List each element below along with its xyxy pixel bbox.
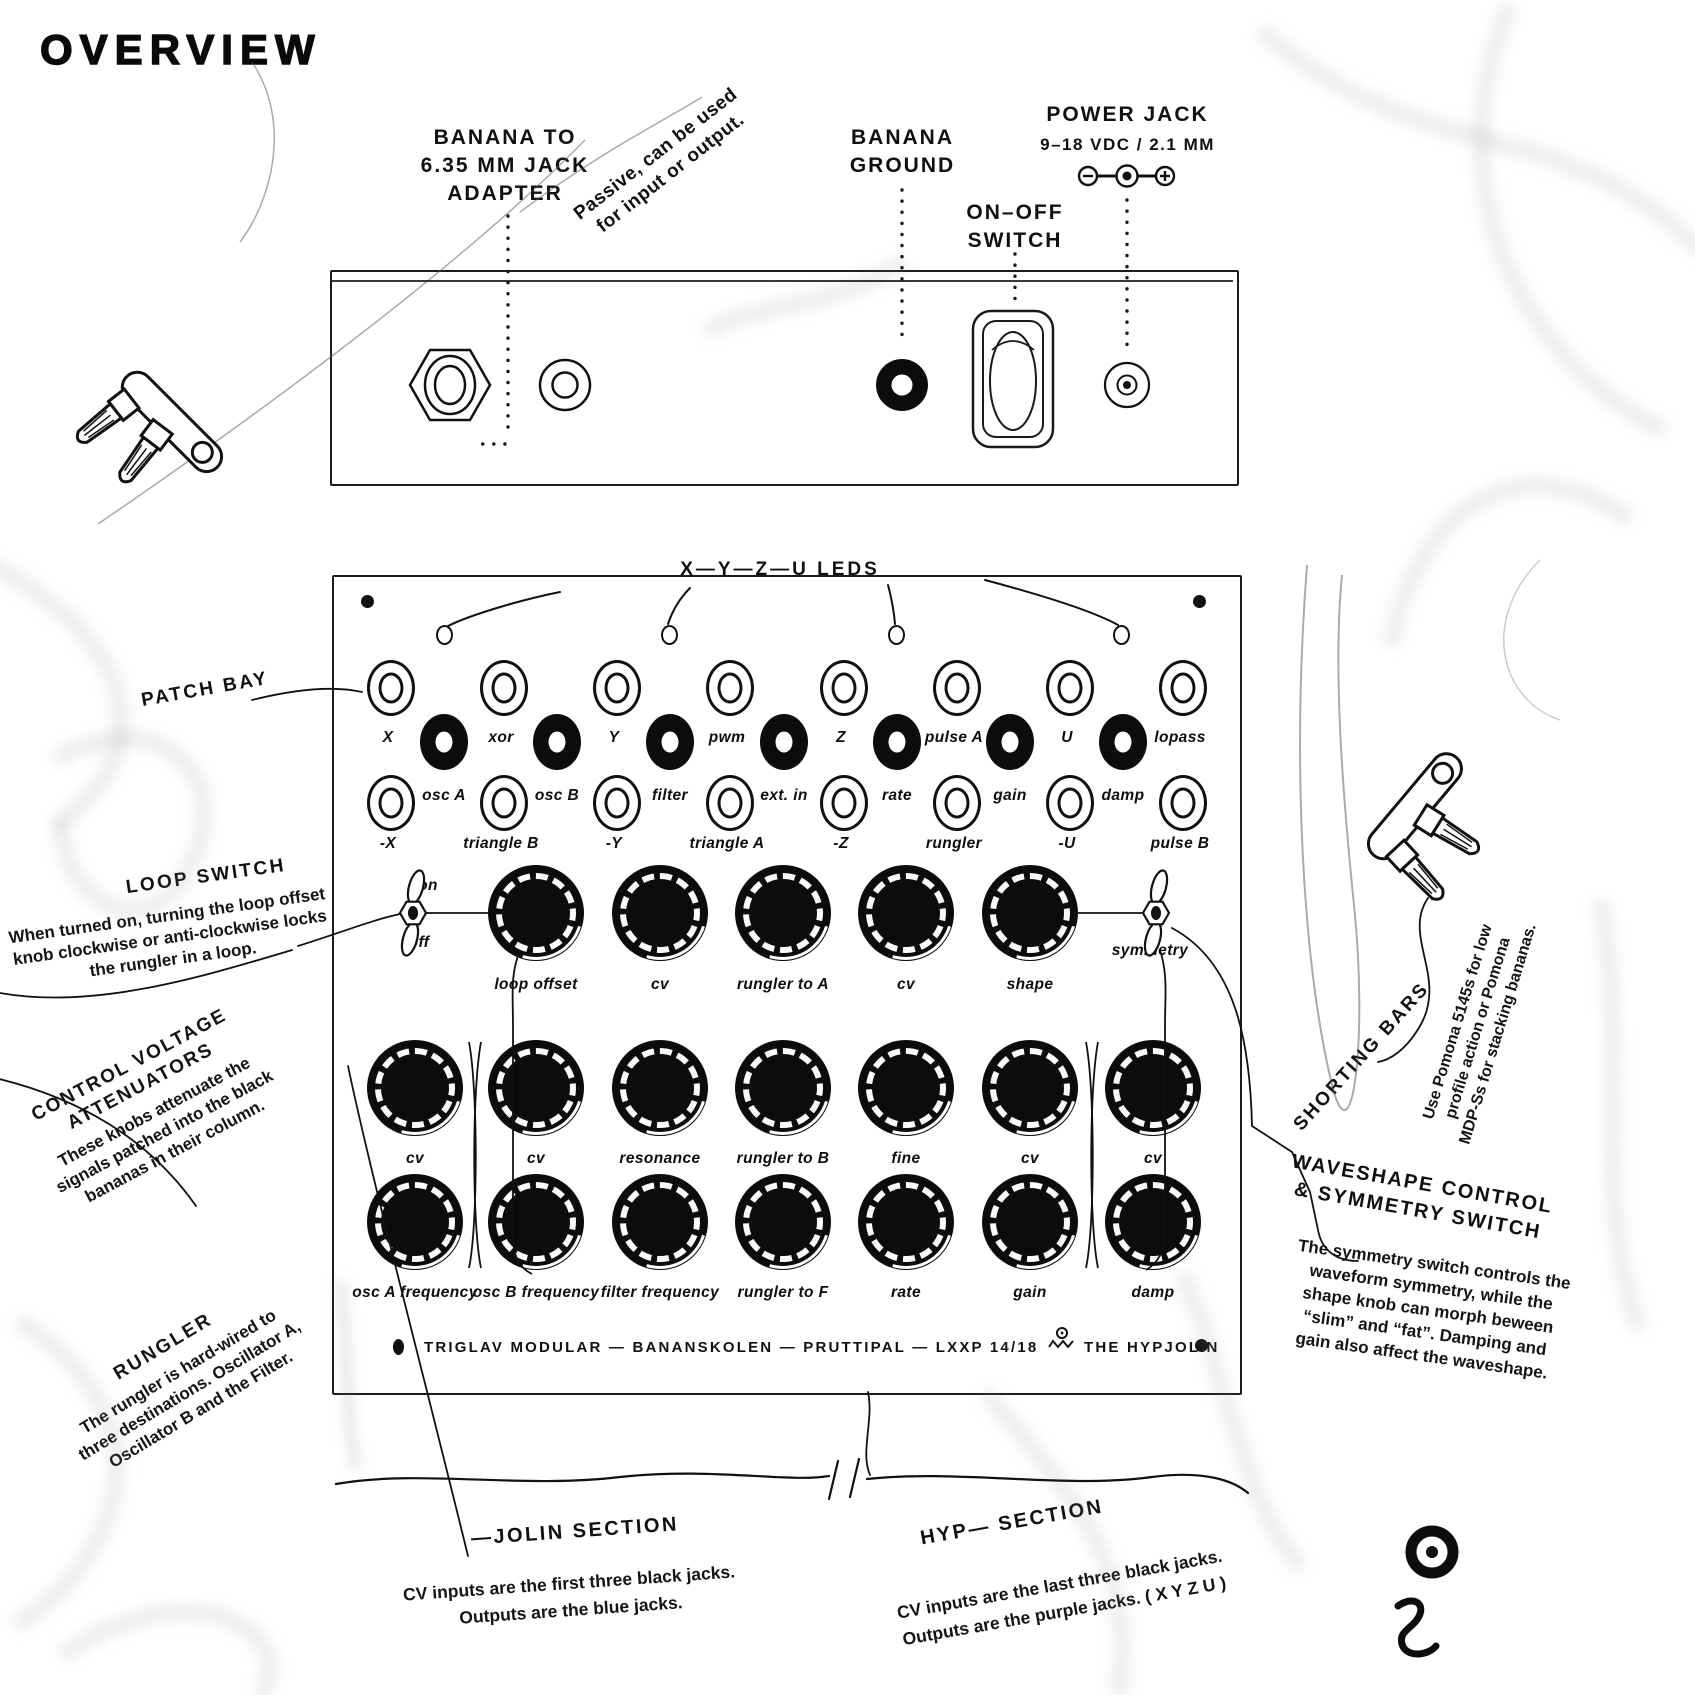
patch-jack-label: Y: [609, 729, 620, 747]
knob: [982, 1040, 1078, 1136]
knob: [735, 1040, 831, 1136]
knob-label: cv: [651, 976, 669, 994]
knob: [735, 865, 831, 961]
patch-jack-white: [480, 660, 528, 716]
patch-jack-label: -X: [380, 835, 396, 853]
knob: [488, 1174, 584, 1270]
knob: [858, 1040, 954, 1136]
patch-jack-white: [1159, 660, 1207, 716]
ground-label-line: BANANA: [800, 124, 1005, 152]
knob-label: cv: [1021, 1150, 1039, 1168]
knob: [1105, 1174, 1201, 1270]
hyp-section-title: HYP— SECTION: [919, 1496, 1106, 1551]
patch-jack-label: xor: [488, 729, 513, 747]
knob: [982, 1174, 1078, 1270]
onoff-label-line: ON–OFF: [915, 199, 1115, 227]
knob-label: rungler to F: [738, 1284, 829, 1302]
patch-jack-white: [367, 775, 415, 831]
patch-jack-white: [593, 660, 641, 716]
patch-jack-white: [933, 775, 981, 831]
patch-bay-annotation: PATCH BAY: [140, 668, 271, 712]
knob-label: fine: [891, 1150, 920, 1168]
patch-jack-white: [1046, 660, 1094, 716]
patch-jack-white: [933, 660, 981, 716]
knob-label: rungler to A: [737, 976, 829, 994]
top-edge-panel: [330, 270, 1239, 486]
knob: [612, 865, 708, 961]
patch-jack-white: [1159, 775, 1207, 831]
knob-label: osc A frequency: [352, 1284, 477, 1302]
knob: [488, 1040, 584, 1136]
xyzu-led: [888, 625, 905, 645]
patch-jack-black: [420, 714, 468, 770]
knob-label: cv: [406, 1150, 424, 1168]
adapter-label-line: 6.35 MM JACK: [380, 152, 630, 180]
adapter-label-line: BANANA TO: [380, 124, 630, 152]
ground-label: BANANA GROUND: [800, 124, 1005, 180]
panel-screw: [361, 595, 374, 608]
patch-jack-label: lopass: [1154, 729, 1206, 747]
knob-label: shape: [1007, 976, 1054, 994]
knob-label: osc B frequency: [473, 1284, 600, 1302]
product-name: THE HYPJOLIN: [1084, 1339, 1220, 1356]
knob: [488, 865, 584, 961]
panel-screw: [393, 1339, 404, 1355]
patch-jack-label: ext. in: [760, 787, 808, 805]
patch-jack-white: [706, 660, 754, 716]
patch-jack-label: U: [1061, 729, 1073, 747]
knob: [612, 1040, 708, 1136]
patch-jack-label: rungler: [926, 835, 982, 853]
patch-jack-black: [533, 714, 581, 770]
knob: [982, 865, 1078, 961]
cv-attenuators-annotation: CONTROL VOLTAGE ATTENUATORS These knobs …: [17, 998, 288, 1218]
rungler-annotation: RUNGLER The rungler is hard-wired to thr…: [48, 1271, 316, 1485]
patch-jack-label: triangle A: [690, 835, 765, 853]
patch-jack-label: pulse B: [1151, 835, 1210, 853]
loop-switch-annotation-body: When turned on, turning the loop offset …: [7, 883, 332, 993]
onoff-label-line: SWITCH: [915, 227, 1115, 255]
shorting-bars-annotation-title: SHORTING BARS: [1290, 978, 1435, 1135]
patch-jack-white: [820, 660, 868, 716]
knob: [735, 1174, 831, 1270]
knob-label: cv: [897, 976, 915, 994]
knob: [367, 1174, 463, 1270]
power-label-line: POWER JACK: [1020, 101, 1235, 129]
page-title: OVERVIEW: [40, 26, 322, 74]
patch-jack-label: -Y: [606, 835, 622, 853]
onoff-label: ON–OFF SWITCH: [915, 199, 1115, 255]
patch-jack-label: gain: [993, 787, 1026, 805]
knob-label: cv: [1144, 1150, 1162, 1168]
waveshape-annotation-body: The symmetry switch controls the wavefor…: [1284, 1234, 1572, 1386]
patch-jack-label: Z: [836, 729, 846, 747]
patch-jack-label: -U: [1058, 835, 1075, 853]
patch-jack-label: rate: [882, 787, 912, 805]
patch-jack-black: [873, 714, 921, 770]
power-sub-label: 9–18 VDC / 2.1 MM: [1020, 131, 1235, 159]
patch-jack-white: [1046, 775, 1094, 831]
loop-switch-on-label: on: [418, 877, 438, 895]
patch-jack-black: [760, 714, 808, 770]
knob-label: filter frequency: [601, 1284, 719, 1302]
xyzu-led: [436, 625, 453, 645]
knob: [858, 865, 954, 961]
hyp-section-body: CV inputs are the last three black jacks…: [895, 1543, 1229, 1653]
knob-label: resonance: [619, 1150, 700, 1168]
patch-jack-white: [480, 775, 528, 831]
patch-jack-black: [646, 714, 694, 770]
knob-label: rate: [891, 1284, 921, 1302]
patch-jack-white: [367, 660, 415, 716]
knob-label: rungler to B: [737, 1150, 830, 1168]
knob: [858, 1174, 954, 1270]
knob-label: loop offset: [494, 976, 577, 994]
symmetry-switch-label: symmetry: [1112, 942, 1188, 960]
patch-jack-label: filter: [652, 787, 688, 805]
patch-jack-black: [1099, 714, 1147, 770]
patch-jack-label: damp: [1102, 787, 1145, 805]
patch-jack-label: -Z: [833, 835, 848, 853]
patch-jack-label: pwm: [709, 729, 746, 747]
knob: [367, 1040, 463, 1136]
jolin-section-body: CV inputs are the first three black jack…: [402, 1558, 738, 1635]
knob-label: damp: [1132, 1284, 1175, 1302]
patch-jack-label: pulse A: [925, 729, 983, 747]
jolin-section-title: —JOLIN SECTION: [470, 1513, 679, 1550]
panel-screw: [1193, 595, 1206, 608]
patch-jack-white: [820, 775, 868, 831]
brand-text: TRIGLAV MODULAR — BANANSKOLEN — PRUTTIPA…: [424, 1339, 1038, 1356]
xyzu-led: [1113, 625, 1130, 645]
shorting-bars-annotation-body: Use Pomona 5145s for low profile action …: [1414, 909, 1541, 1147]
knob: [1105, 1040, 1201, 1136]
xyzu-led: [661, 625, 678, 645]
loop-switch-off-label: off: [409, 934, 430, 952]
waveshape-annotation-title: WAVESHAPE CONTROL & SYMMETRY SWITCH: [1285, 1148, 1555, 1247]
power-label: POWER JACK 9–18 VDC / 2.1 MM: [1020, 101, 1235, 159]
patch-jack-black: [986, 714, 1034, 770]
patch-jack-white: [593, 775, 641, 831]
patch-jack-label: X: [383, 729, 394, 747]
ground-label-line: GROUND: [800, 152, 1005, 180]
knob: [612, 1174, 708, 1270]
patch-jack-label: osc A: [422, 787, 466, 805]
patch-jack-white: [706, 775, 754, 831]
knob-label: cv: [527, 1150, 545, 1168]
patch-jack-label: triangle B: [463, 835, 538, 853]
knob-label: gain: [1013, 1284, 1046, 1302]
patch-jack-label: osc B: [535, 787, 579, 805]
